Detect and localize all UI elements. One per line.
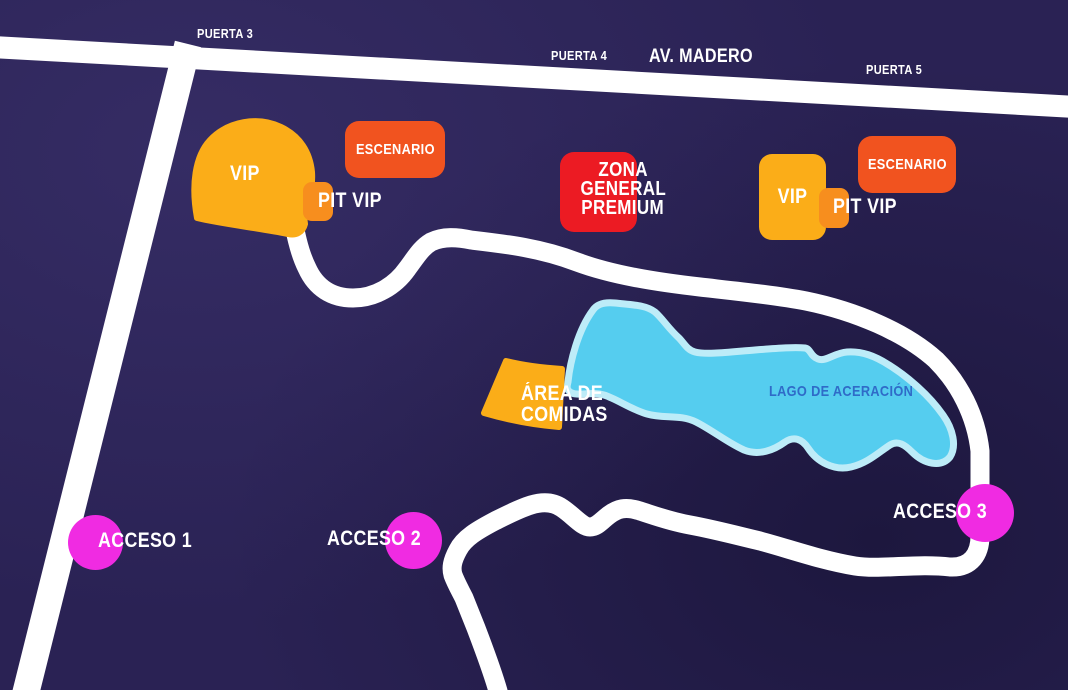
av-madero-text: AV. MADERO: [649, 47, 753, 66]
vip-left-label: VIP: [230, 163, 265, 184]
area-comidas-line-2: COMIDAS: [521, 404, 608, 425]
acceso-1-label: ACCESO 1: [98, 530, 209, 551]
area-comidas-line-1: ÁREA DE: [521, 383, 603, 404]
acceso-2-label: ACCESO 2: [327, 528, 438, 549]
escenario-left-label: ESCENARIO: [356, 141, 435, 158]
puerta-5-text: PUERTA 5: [866, 63, 922, 76]
map-shapes-canvas: [0, 0, 1068, 690]
acceso-3-label: ACCESO 3: [893, 501, 1004, 522]
escenario-right-label: ESCENARIO: [868, 156, 947, 173]
pit-vip-left-text: PIT VIP: [318, 190, 382, 211]
lake-label-text: LAGO DE ACERACIÓN: [769, 384, 913, 399]
area-comidas-label: ÁREA DE COMIDAS: [521, 383, 623, 425]
lake-label: LAGO DE ACERACIÓN: [769, 384, 939, 399]
event-venue-map: ESCENARIO ESCENARIO VIP PUERTA 3 PUERTA …: [0, 0, 1068, 690]
vip-right-badge: VIP: [759, 154, 826, 240]
acceso-3-text: ACCESO 3: [893, 501, 987, 522]
zona-general-premium-label: ZONA GENERAL PREMIUM: [564, 161, 682, 218]
zona-line-3: PREMIUM: [582, 199, 665, 218]
puerta-5-label: PUERTA 5: [866, 63, 932, 76]
pit-vip-right-text: PIT VIP: [833, 196, 897, 217]
av-madero-label: AV. MADERO: [649, 47, 771, 66]
puerta-3-text: PUERTA 3: [197, 27, 253, 40]
puerta-3-label: PUERTA 3: [197, 27, 263, 40]
puerta-4-text: PUERTA 4: [551, 49, 607, 62]
avenida-madero-road: [0, 47, 1068, 107]
vip-left-text: VIP: [230, 163, 260, 184]
vip-right-label: VIP: [778, 185, 808, 209]
escenario-right-badge: ESCENARIO: [858, 136, 956, 193]
pit-vip-right-label: PIT VIP: [833, 196, 908, 217]
west-side-road: [25, 44, 188, 690]
puerta-4-label: PUERTA 4: [551, 49, 617, 62]
acceso-1-text: ACCESO 1: [98, 530, 192, 551]
pit-vip-left-label: PIT VIP: [318, 190, 393, 211]
acceso-2-text: ACCESO 2: [327, 528, 421, 549]
escenario-left-badge: ESCENARIO: [345, 121, 445, 178]
